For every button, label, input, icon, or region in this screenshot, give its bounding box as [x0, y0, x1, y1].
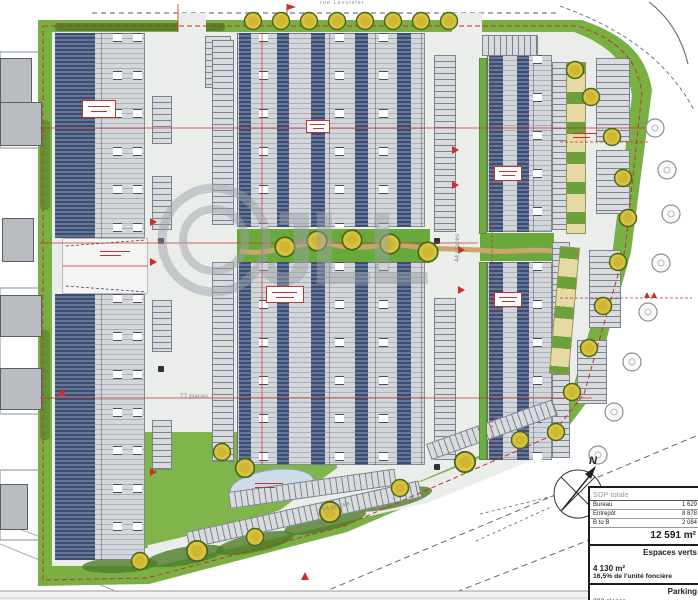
parking-count-label: 44 places [455, 234, 461, 262]
roof-skylights [533, 262, 542, 460]
solar-roof-panels [517, 55, 529, 232]
legend-row-value: 1 629 [682, 502, 697, 508]
solar-roof-panels [311, 262, 325, 465]
annotation-box [266, 286, 304, 303]
planting-strip [479, 262, 487, 460]
solar-roof-panels [397, 262, 411, 465]
scooter-icon [434, 464, 440, 470]
roof-skylights [335, 33, 344, 227]
parking-row [152, 300, 172, 352]
annotation-text [573, 131, 597, 140]
espaces-verts-pct: 16,5% de l'unité foncière [590, 573, 698, 585]
entrance-arrow-icon [458, 286, 469, 294]
scooter-icon [158, 238, 164, 244]
espaces-verts-area: 4 130 m² [590, 558, 698, 573]
parking-row [482, 35, 538, 56]
annotation-box [494, 166, 522, 181]
neighbour-building [2, 218, 34, 262]
parking-row [596, 58, 630, 142]
parking-row [577, 340, 607, 404]
roof-skylights [259, 33, 268, 227]
roof-skylights [133, 294, 142, 560]
truck-court [62, 238, 148, 294]
espaces-verts-title: Espaces verts [590, 546, 698, 558]
road-curve [649, 2, 688, 64]
neighbour-building [0, 368, 42, 410]
solar-roof-panels [277, 33, 289, 227]
neighbour-building [0, 102, 42, 146]
roof-skylights [379, 262, 388, 465]
roof-skylights [113, 294, 122, 560]
parking-row [212, 40, 234, 225]
solar-roof-panels [239, 33, 251, 227]
annotation-box [494, 292, 522, 307]
legend-row: B to B 2 084 [590, 519, 698, 528]
solar-roof-panels [355, 33, 368, 227]
site-entrance [178, 13, 206, 34]
legend-table: SDP totale Bureau 1 629 Entrepôt 8 878 B… [588, 486, 698, 600]
parking-title: Parking [590, 585, 698, 597]
green-band [480, 233, 554, 261]
parking-row [152, 96, 172, 144]
roof-skylights [133, 33, 142, 238]
legend-row: Bureau 1 629 [590, 501, 698, 510]
solar-roof-panels [489, 55, 503, 232]
neighbour-building [0, 484, 28, 530]
annotation-text [100, 250, 130, 258]
annotation-box [82, 100, 116, 118]
roof-skylights [379, 33, 388, 227]
parking-row [596, 150, 630, 214]
legend-row-value: 8 878 [682, 511, 697, 517]
entrance-arrow-icon [452, 181, 463, 189]
planting-strip [479, 58, 487, 234]
neighbour-building [0, 58, 32, 106]
parking-count-label: 77 places [180, 394, 208, 400]
solar-roof-panels [355, 262, 368, 465]
street-name-label: rue Lavoisier [320, 0, 365, 6]
roof-skylights [335, 262, 344, 465]
legend-row-value: 2 084 [682, 520, 697, 526]
annotation-box [306, 120, 330, 133]
roof-skylights [113, 33, 122, 238]
roof-skylights [533, 55, 542, 232]
solar-roof-panels [55, 33, 95, 238]
entrance-arrow-icon [150, 258, 161, 266]
solar-roof-panels [55, 294, 95, 560]
sdp-total: 12 591 m² [590, 528, 698, 546]
solar-roof-panels [397, 33, 411, 227]
parking-row [434, 55, 456, 232]
site-plan: rue Lavoisier 44 places 77 places 54 pla… [0, 0, 698, 600]
legend-row-label: B to B [593, 520, 609, 526]
warehouse-building [237, 33, 425, 227]
pergola-strip [566, 62, 586, 234]
site-entrance [452, 13, 482, 34]
solar-roof-panels [239, 262, 251, 465]
warehouse-building [55, 294, 145, 560]
legend-row: Entrepôt 8 878 [590, 510, 698, 519]
parking-row [152, 420, 172, 470]
parking-row [589, 250, 621, 328]
entrance-arrow-icon [150, 218, 161, 226]
legend-row-label: Entrepôt [593, 511, 616, 517]
parking-row [212, 262, 234, 462]
warehouse-building [55, 33, 145, 238]
entrance-arrow-icon [452, 146, 463, 154]
annotation-text [255, 482, 283, 489]
warehouse-building [487, 55, 552, 232]
legend-header: SDP totale [590, 488, 698, 501]
neighbour-building [0, 295, 42, 337]
entrance-arrow-icon [150, 468, 161, 476]
legend-row-label: Bureau [593, 502, 612, 508]
scooter-icon [158, 366, 164, 372]
scooter-icon [434, 238, 440, 244]
